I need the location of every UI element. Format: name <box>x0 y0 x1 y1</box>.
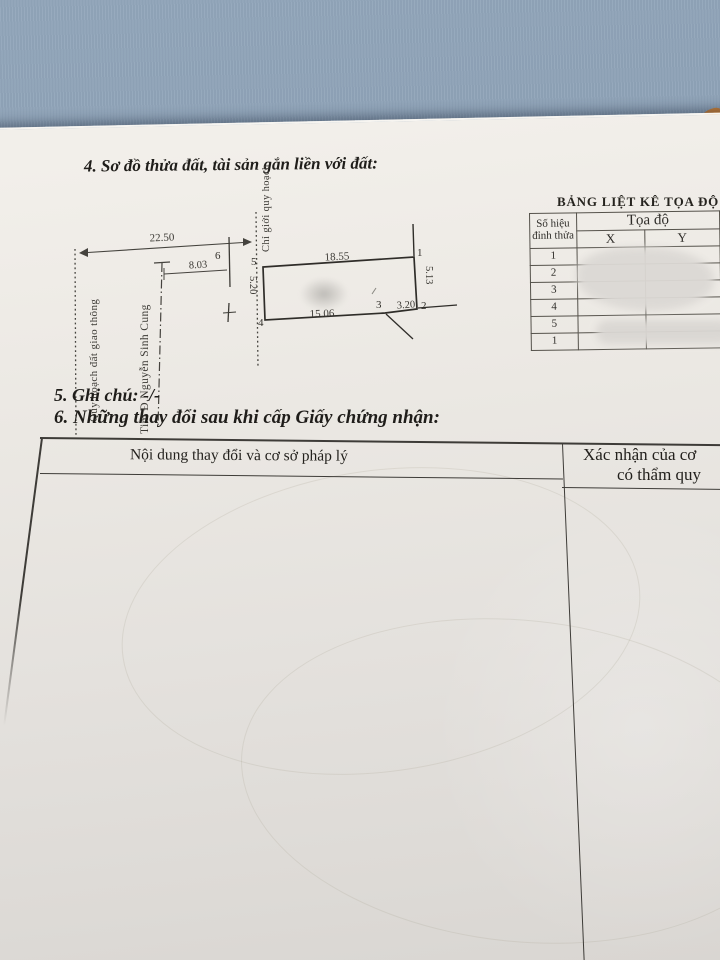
redaction-blur <box>596 320 720 344</box>
section6-heading: 6. Những thay đổi sau khi cấp Giấy chứng… <box>54 407 440 429</box>
coord-x-header: X <box>576 230 645 248</box>
dim-8-03: 8.03 <box>180 259 217 272</box>
vertex-4: 4 <box>258 317 264 329</box>
document-photo: 4. Sơ đồ thửa đất, tài sản gắn liền với … <box>0 0 720 960</box>
vertex-2: 2 <box>421 300 427 312</box>
dim-18-55: 18.55 <box>315 250 360 264</box>
coord-row-num: 4 <box>531 299 578 317</box>
vertex-1: 1 <box>417 247 423 259</box>
section4-heading: 4. Sơ đồ thửa đất, tài sản gắn liền với … <box>84 153 378 176</box>
corner-header-line1: Số hiệu <box>536 218 569 230</box>
coord-row-num: 1 <box>531 333 578 351</box>
vertex-3: 3 <box>376 299 382 311</box>
coord-table-title: BẢNG LIỆT KÊ TỌA ĐỘ <box>557 194 719 210</box>
dim-3-20: 3.20 <box>391 299 422 312</box>
coord-row-num: 2 <box>530 265 577 283</box>
planning-boundary-label: Chỉ giới quy hoạch <box>261 170 272 252</box>
changes-content-header: Nội dung thay đổi và cơ sở pháp lý <box>130 446 348 466</box>
coord-row-num: 1 <box>530 248 577 266</box>
vertex-5: 5 <box>251 256 257 268</box>
changes-confirm-header-line1: Xác nhận của cơ <box>583 445 696 465</box>
vertex-6: 6 <box>215 250 221 262</box>
coord-y-header: Y <box>645 229 720 247</box>
section5-heading: 5. Ghi chú: -/- <box>54 385 160 406</box>
changes-confirm-header-line2: có thẩm quy <box>617 465 701 485</box>
dim-15-06: 15.06 <box>300 307 344 321</box>
dim-5-20: 5.20 <box>247 276 258 294</box>
coord-row-num: 3 <box>530 282 577 300</box>
corner-header-line2: đỉnh thửa <box>532 229 574 242</box>
coord-row-num: 5 <box>531 316 578 334</box>
coord-group-header: Tọa độ <box>576 211 720 231</box>
coord-corner-header: Số hiệu đỉnh thửa <box>530 213 577 249</box>
dim-22-50: 22.50 <box>140 231 184 245</box>
dim-5-13: 5.13 <box>423 266 434 284</box>
